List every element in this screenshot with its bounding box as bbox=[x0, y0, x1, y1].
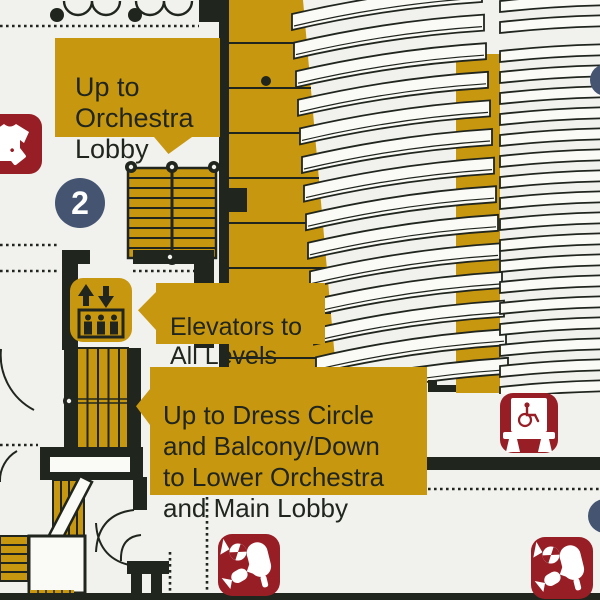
door-arc bbox=[121, 535, 141, 561]
accessible-seating-icon bbox=[500, 393, 558, 453]
seating-right-section bbox=[500, 0, 600, 398]
door-arc bbox=[92, 1, 120, 15]
callout-dress-circle: Up to Dress Circle and Balcony/Down to L… bbox=[150, 367, 427, 495]
door-arc bbox=[164, 1, 192, 15]
door-arc bbox=[0, 451, 17, 482]
column bbox=[128, 8, 142, 22]
door-arc bbox=[64, 1, 92, 15]
edge-badge bbox=[588, 499, 600, 533]
elevator-icon bbox=[70, 278, 132, 342]
concessions-icon bbox=[218, 534, 593, 599]
callout-orchestra-lobby: Up to Orchestra Lobby bbox=[55, 38, 220, 137]
floor-map: Up to Orchestra Lobby Elevators to All L… bbox=[0, 0, 600, 600]
people-glyph bbox=[84, 315, 118, 335]
row-end-wall bbox=[428, 380, 456, 392]
level-number: 2 bbox=[71, 185, 89, 222]
door-arc bbox=[1, 349, 34, 410]
level-badge: 2 bbox=[55, 178, 105, 228]
room bbox=[29, 536, 85, 593]
stairwell-bottom bbox=[0, 476, 92, 598]
stairs-upper bbox=[125, 161, 220, 265]
wall-bottom bbox=[0, 593, 600, 600]
wall-horizontal bbox=[425, 457, 600, 470]
coat-check-icon bbox=[0, 114, 42, 174]
callout-elevators: Elevators to All Levels bbox=[156, 283, 325, 344]
column bbox=[50, 8, 64, 22]
